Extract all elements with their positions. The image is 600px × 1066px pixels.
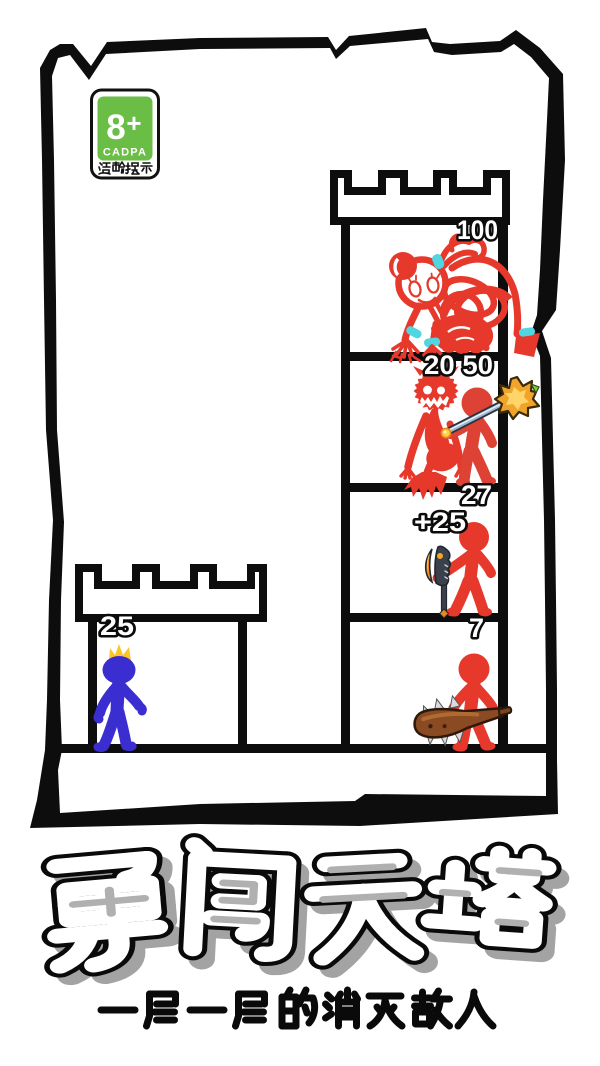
svg-text:7: 7 bbox=[469, 613, 484, 643]
svg-text:+: + bbox=[126, 108, 141, 138]
svg-text:100: 100 bbox=[457, 215, 498, 245]
svg-text:CADPA: CADPA bbox=[103, 147, 147, 159]
svg-text:20 50: 20 50 bbox=[424, 350, 493, 380]
svg-text:+25: +25 bbox=[414, 507, 466, 537]
svg-text:25: 25 bbox=[100, 611, 134, 641]
svg-text:27: 27 bbox=[461, 480, 492, 510]
svg-text:8: 8 bbox=[106, 108, 125, 147]
